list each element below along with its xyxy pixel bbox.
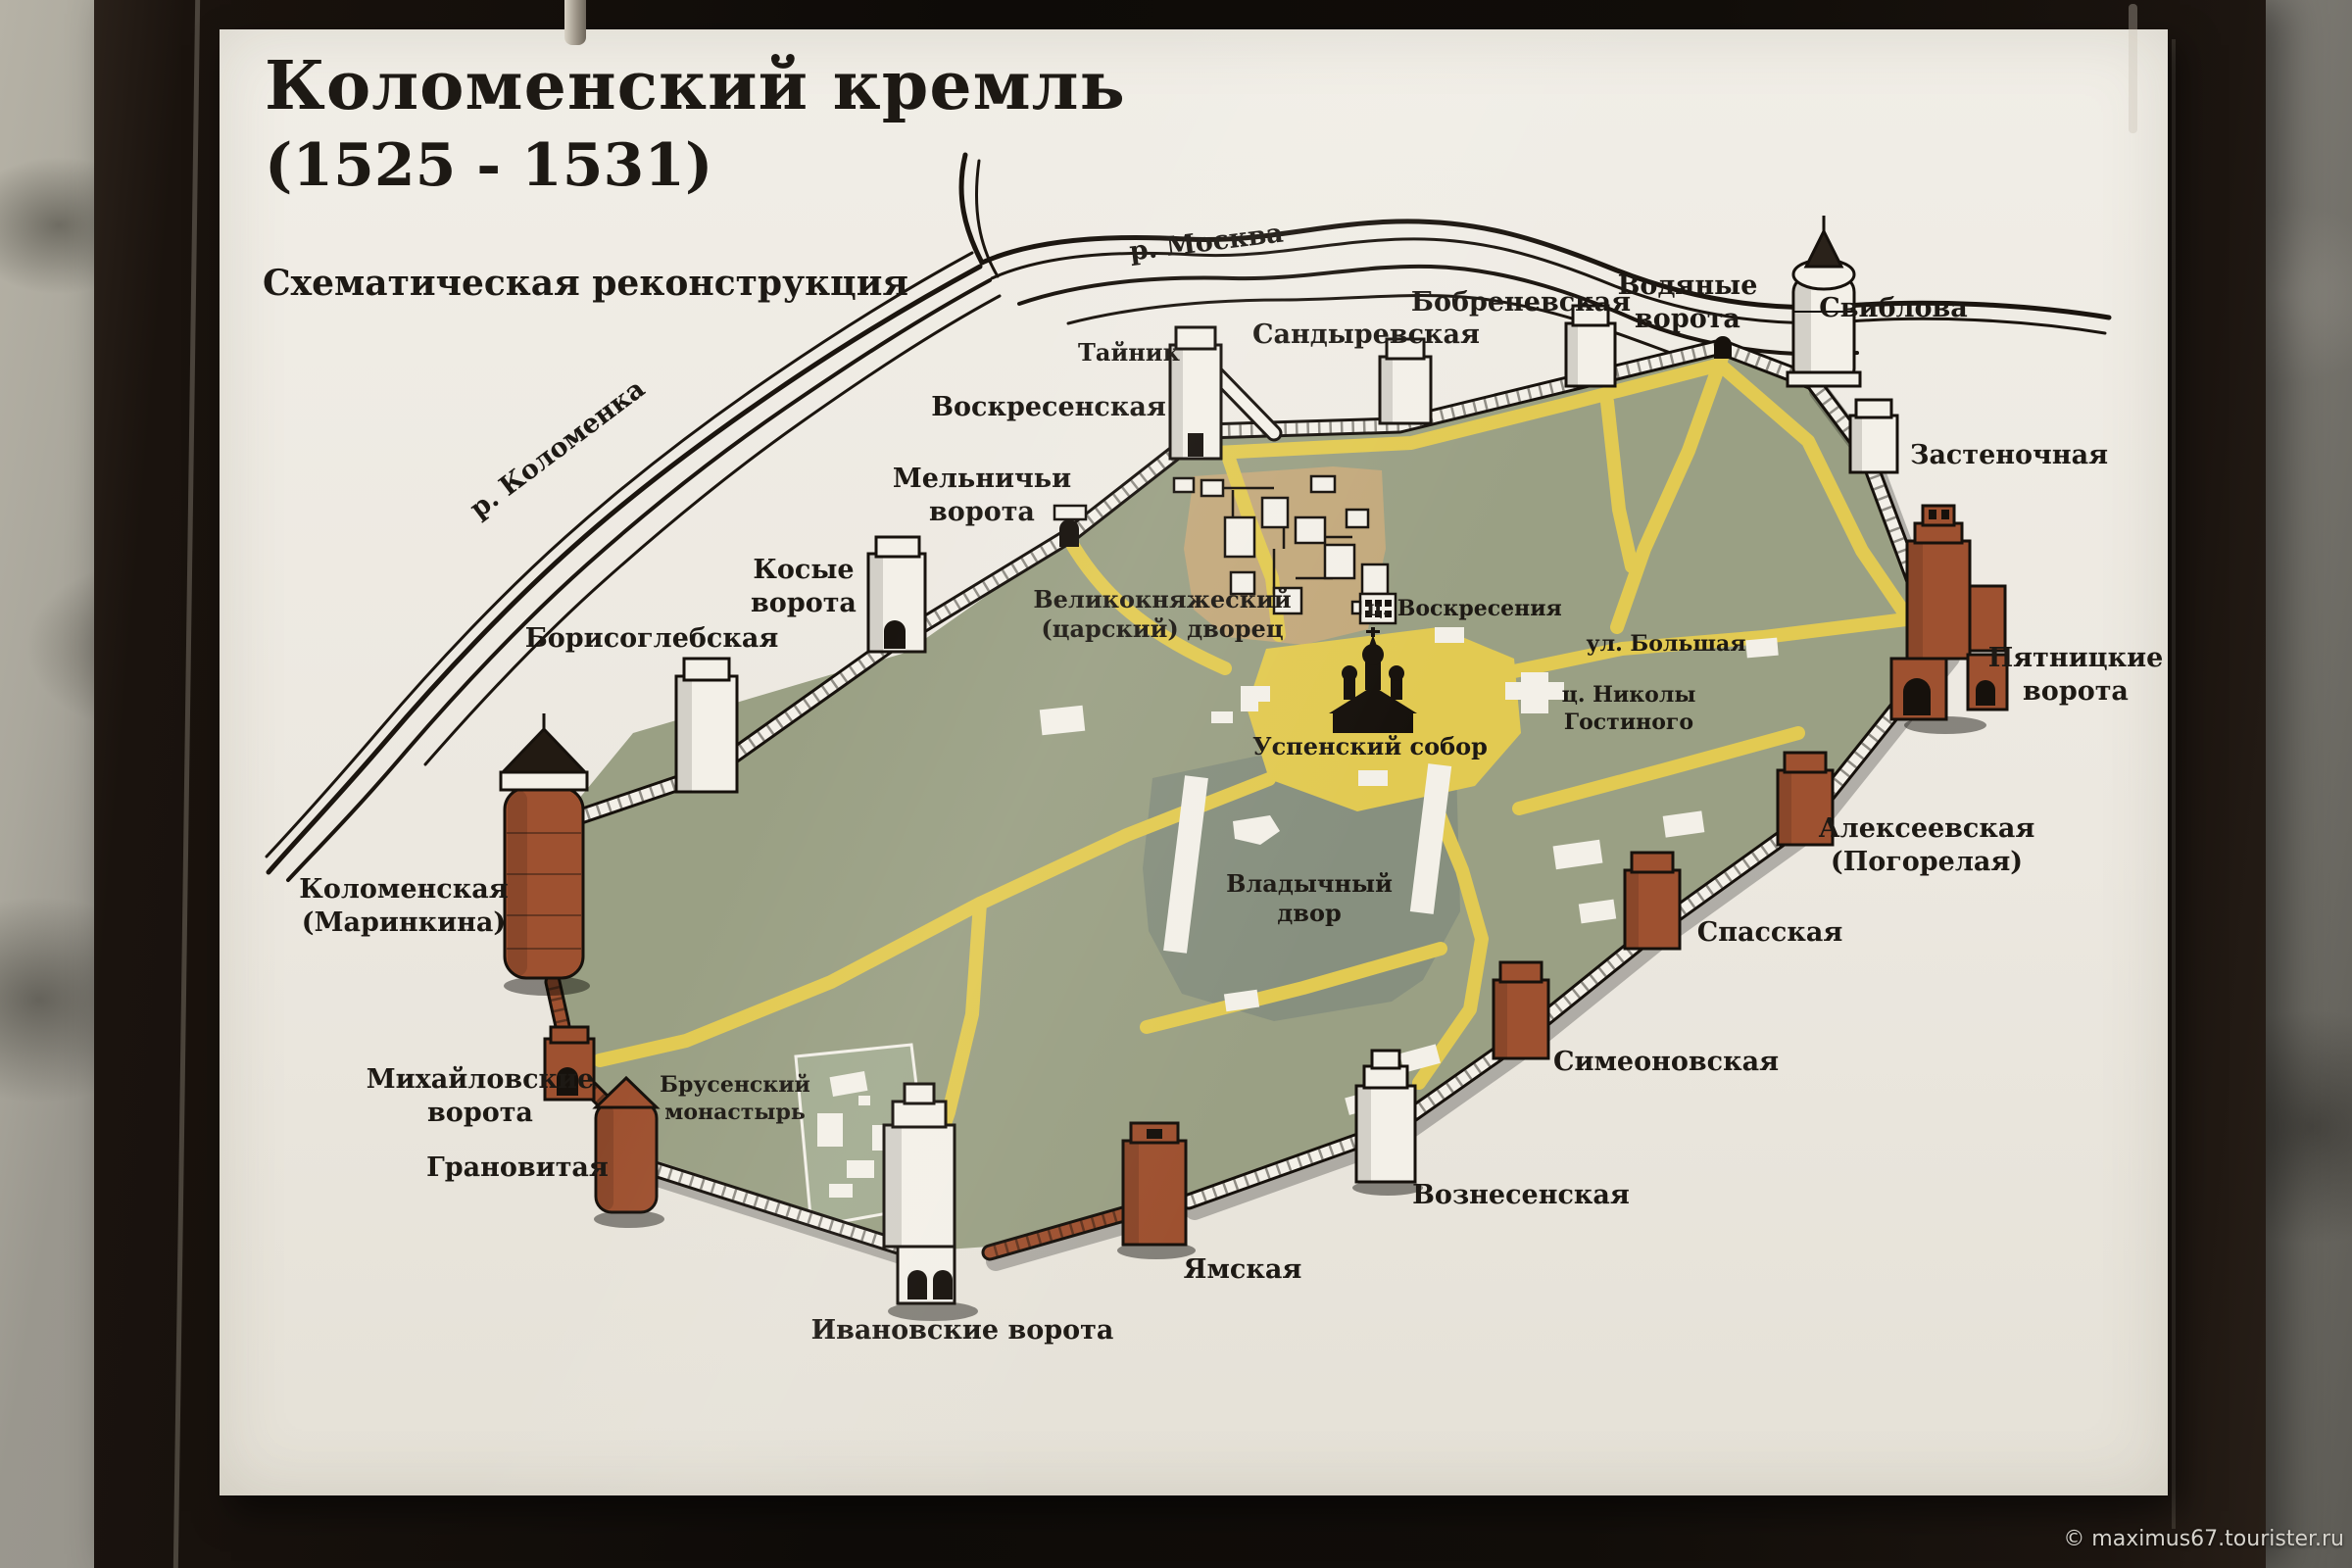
- map-label-granovitaya: Грановитая: [426, 1152, 609, 1183]
- kremlin-map: р. Москвар. КоломенкаТайникВоскресенская…: [220, 29, 2168, 1495]
- tower-borisoglebskaya: [676, 659, 737, 792]
- poster-years: (1525 - 1531): [265, 131, 712, 200]
- map-label-palace: Великокняжеский(царский) дворец: [1033, 585, 1291, 643]
- map-label-river-moskva: р. Москва: [1128, 219, 1285, 268]
- map-label-kosye-vorota: Косыеворота: [751, 555, 857, 618]
- tower-sandyrevskaya: [1380, 339, 1431, 423]
- map-label-melnichyi-vorota: Мельничьиворота: [893, 464, 1071, 527]
- map-label-voznesenskaya: Вознесенская: [1412, 1180, 1630, 1210]
- tower-bobrenevskaya: [1566, 306, 1615, 386]
- tower-zastenochnaya: [1850, 400, 1897, 472]
- tower-spasskaya: [1625, 853, 1680, 949]
- map-label-kolomenskaya: Коломенская(Маринкина): [299, 874, 508, 938]
- frame-edge-highlight-right: [2172, 39, 2176, 1529]
- frame-clip-right-icon: [2129, 4, 2137, 133]
- tower-kolomenskaya: [501, 713, 587, 978]
- map-label-borisoglebskaya: Борисоглебская: [525, 623, 779, 654]
- map-label-ts-voskreseniya: ц. Воскресения: [1366, 596, 1562, 621]
- tower-voznesenskaya: [1356, 1051, 1415, 1182]
- map-label-uspensky-sobor: Успенский собор: [1252, 732, 1488, 760]
- map-label-ivanovskie-vorota: Ивановские ворота: [811, 1315, 1114, 1346]
- map-label-alekseevskaya: Алексеевская(Погорелая): [1819, 813, 2035, 877]
- map-label-simeonovskaya: Симеоновская: [1553, 1047, 1779, 1077]
- gate-ivanovskie: [884, 1084, 955, 1303]
- poster: Коломенский кремль (1525 - 1531) Схемати…: [220, 29, 2168, 1495]
- frame-clip-icon: [564, 0, 586, 45]
- map-label-taynik: Тайник: [1078, 338, 1181, 367]
- map-label-zastenochnaya: Застеночная: [1910, 440, 2108, 470]
- map-label-pyatnitskie-vorota: Пятницкиеворота: [1988, 643, 2164, 707]
- map-label-bobrenevskaya: Бобреневская: [1411, 287, 1631, 318]
- tower-yamskaya: [1123, 1123, 1186, 1245]
- map-label-ul-bolshaya: ул. Большая: [1587, 631, 1746, 657]
- gate-kosye: [868, 537, 925, 652]
- map-label-sandyrevskaya: Сандыревская: [1252, 319, 1480, 350]
- map-label-sviblova: Свиблова: [1819, 293, 1968, 323]
- map-label-yamskaya: Ямская: [1184, 1254, 1302, 1285]
- tower-simeonovskaya: [1494, 962, 1548, 1058]
- watermark: © maximus67.tourister.ru: [2063, 1527, 2344, 1551]
- photo-background: Коломенский кремль (1525 - 1531) Схемати…: [0, 0, 2352, 1568]
- map-label-voskresenskaya: Воскресенская: [931, 392, 1166, 422]
- tower-granovitaya: [596, 1078, 657, 1212]
- poster-title: Коломенский кремль: [265, 47, 1126, 125]
- poster-subtitle: Схематическая реконструкция: [263, 263, 908, 304]
- vodyanye-gate-icon: [1714, 336, 1732, 359]
- map-label-spasskaya: Спасская: [1697, 917, 1843, 948]
